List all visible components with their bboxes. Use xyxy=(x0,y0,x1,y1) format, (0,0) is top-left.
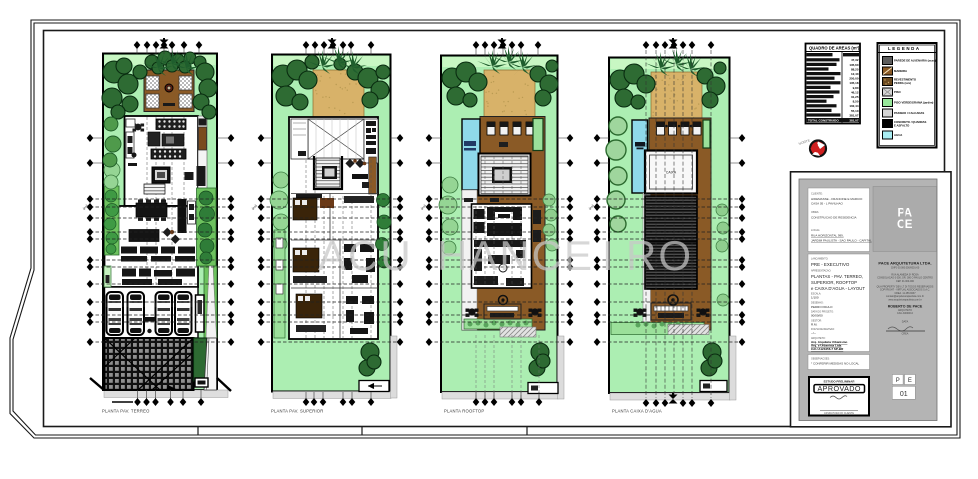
svg-text:102,44: 102,44 xyxy=(849,104,859,108)
svg-text:PACE ARQUITETURA LTDA.: PACE ARQUITETURA LTDA. xyxy=(878,261,931,266)
svg-text:01: 01 xyxy=(900,391,908,398)
svg-text:PEDRO PAULO: PEDRO PAULO xyxy=(811,305,833,309)
svg-text:47,32: 47,32 xyxy=(851,58,859,62)
svg-text:9,80: 9,80 xyxy=(853,86,859,90)
svg-text:PLANTA PAV. SUPERIOR: PLANTA PAV. SUPERIOR xyxy=(271,409,323,414)
svg-text:CAIXA: CAIXA xyxy=(666,171,677,175)
svg-text:46,12: 46,12 xyxy=(851,90,859,94)
svg-text:OBRA:: OBRA: xyxy=(811,210,819,214)
svg-text:E: E xyxy=(908,378,912,384)
svg-text:LEGENDA: LEGENDA xyxy=(888,46,921,51)
svg-text:--/--: --/-- xyxy=(811,331,816,335)
svg-text:PLANTAS - PAV. TERREO,: PLANTAS - PAV. TERREO, xyxy=(811,274,863,279)
svg-text:ROBERTO DE PACE: ROBERTO DE PACE xyxy=(888,305,923,309)
svg-text:www.arquiteturapaulista.com.br: www.arquiteturapaulista.com.br xyxy=(888,298,922,301)
svg-text:PLANTA ROOFTOP: PLANTA ROOFTOP xyxy=(444,409,484,414)
svg-text:PEDRA (xxx): PEDRA (xxx) xyxy=(894,81,911,85)
svg-text:LANCAMENTO:: LANCAMENTO: xyxy=(811,258,829,261)
svg-text:E ASFALTO: E ASFALTO xyxy=(894,123,910,127)
svg-text:OBSERVACOES:: OBSERVACOES: xyxy=(811,358,830,361)
svg-text:QUADRO DE AREAS (m²): QUADRO DE AREAS (m²) xyxy=(809,46,860,51)
svg-text:P: P xyxy=(896,378,900,384)
svg-text:* CONFERIR MEDIDAS NO LOCAL: * CONFERIR MEDIDAS NO LOCAL xyxy=(811,362,860,366)
svg-text:e CAIXA D'AGUA - LAYOUT: e CAIXA D'AGUA - LAYOUT xyxy=(811,286,865,291)
svg-text:ESTUDO PRELIMINAR: ESTUDO PRELIMINAR xyxy=(824,380,856,384)
svg-text:135,18: 135,18 xyxy=(849,81,859,85)
svg-text:RO: RO xyxy=(626,232,693,279)
svg-text:I: I xyxy=(602,232,616,279)
svg-text:JARDIM PAULISTA - SAO PAULO -: JARDIM PAULISTA - SAO PAULO - CAPITAL xyxy=(811,239,872,243)
svg-text:DATA: DATA xyxy=(902,320,909,324)
svg-text:HIDEMASSE - FRANCINE E MARCIO: HIDEMASSE - FRANCINE E MARCIO xyxy=(811,197,863,201)
svg-text:TOTAL CONSTRUIDO: TOTAL CONSTRUIDO xyxy=(808,118,839,122)
svg-text:12,40: 12,40 xyxy=(851,72,859,76)
svg-text:55,10: 55,10 xyxy=(851,109,859,113)
svg-text:SUPERIOR, ROOFTOP: SUPERIOR, ROOFTOP xyxy=(811,280,857,285)
svg-text:ASSINATURA DO CLIENTE: ASSINATURA DO CLIENTE xyxy=(824,412,854,415)
svg-text:APROVADO: APROVADO xyxy=(817,384,860,393)
svg-text:00/00/00: 00/00/00 xyxy=(811,314,823,318)
svg-text:R.M.: R.M. xyxy=(811,322,817,326)
svg-text:HANCE: HANCE xyxy=(437,232,594,279)
svg-text:88,25: 88,25 xyxy=(851,67,859,71)
svg-text:CEP. 01.000-000: CEP. 01.000-000 xyxy=(896,280,915,283)
svg-text:RUA HORIZONTAL 999,: RUA HORIZONTAL 999, xyxy=(811,234,844,238)
svg-text:MADEIRA: MADEIRA xyxy=(894,69,907,73)
svg-text:PLANTA CAIXA D'AGUA: PLANTA CAIXA D'AGUA xyxy=(612,409,662,414)
svg-text:LOCAL:: LOCAL: xyxy=(811,228,821,232)
svg-text:31,25: 31,25 xyxy=(851,95,859,99)
svg-text:CASA 05 - L PAVILHAO: CASA 05 - L PAVILHAO xyxy=(811,202,843,206)
svg-text:CLIENTE:: CLIENTE: xyxy=(811,192,823,196)
svg-text:APRESENTACAO:: APRESENTACAO: xyxy=(811,270,831,273)
svg-text:PRE - EXECUTIVO: PRE - EXECUTIVO xyxy=(811,262,850,267)
svg-text:AGUA: AGUA xyxy=(894,133,902,137)
svg-text:PISO: PISO xyxy=(894,90,902,94)
svg-text:CREA: CREA xyxy=(902,333,909,336)
svg-text:PISO VERDE/GRAMA (jardim): PISO VERDE/GRAMA (jardim) xyxy=(894,101,933,105)
svg-text:PAREDE DE ALVENARIA (xxxx): PAREDE DE ALVENARIA (xxxx) xyxy=(894,59,936,63)
svg-text:135,60: 135,60 xyxy=(849,63,859,67)
svg-text:381,07: 381,07 xyxy=(849,118,859,122)
svg-text:CAU A123456-7 SP-BR: CAU A123456-7 SP-BR xyxy=(811,347,844,351)
svg-text:1/100: 1/100 xyxy=(811,296,819,300)
svg-text:250,00: 250,00 xyxy=(849,77,859,81)
svg-text:8,50: 8,50 xyxy=(853,100,859,104)
svg-text:PLANTA PAV. TERREO: PLANTA PAV. TERREO xyxy=(102,409,150,414)
svg-text:381,07: 381,07 xyxy=(849,113,859,117)
svg-text:CNPJ 00.000.000/0001-00: CNPJ 00.000.000/0001-00 xyxy=(891,267,920,270)
svg-text:CONSTRUCAO DE RESIDENCIA: CONSTRUCAO DE RESIDENCIA xyxy=(811,216,857,220)
svg-text:ACU: ACU xyxy=(318,232,413,279)
svg-text:CAU A00000-0: CAU A00000-0 xyxy=(897,312,914,315)
svg-text:PASSEIO / CALCADAS: PASSEIO / CALCADAS xyxy=(894,111,924,115)
